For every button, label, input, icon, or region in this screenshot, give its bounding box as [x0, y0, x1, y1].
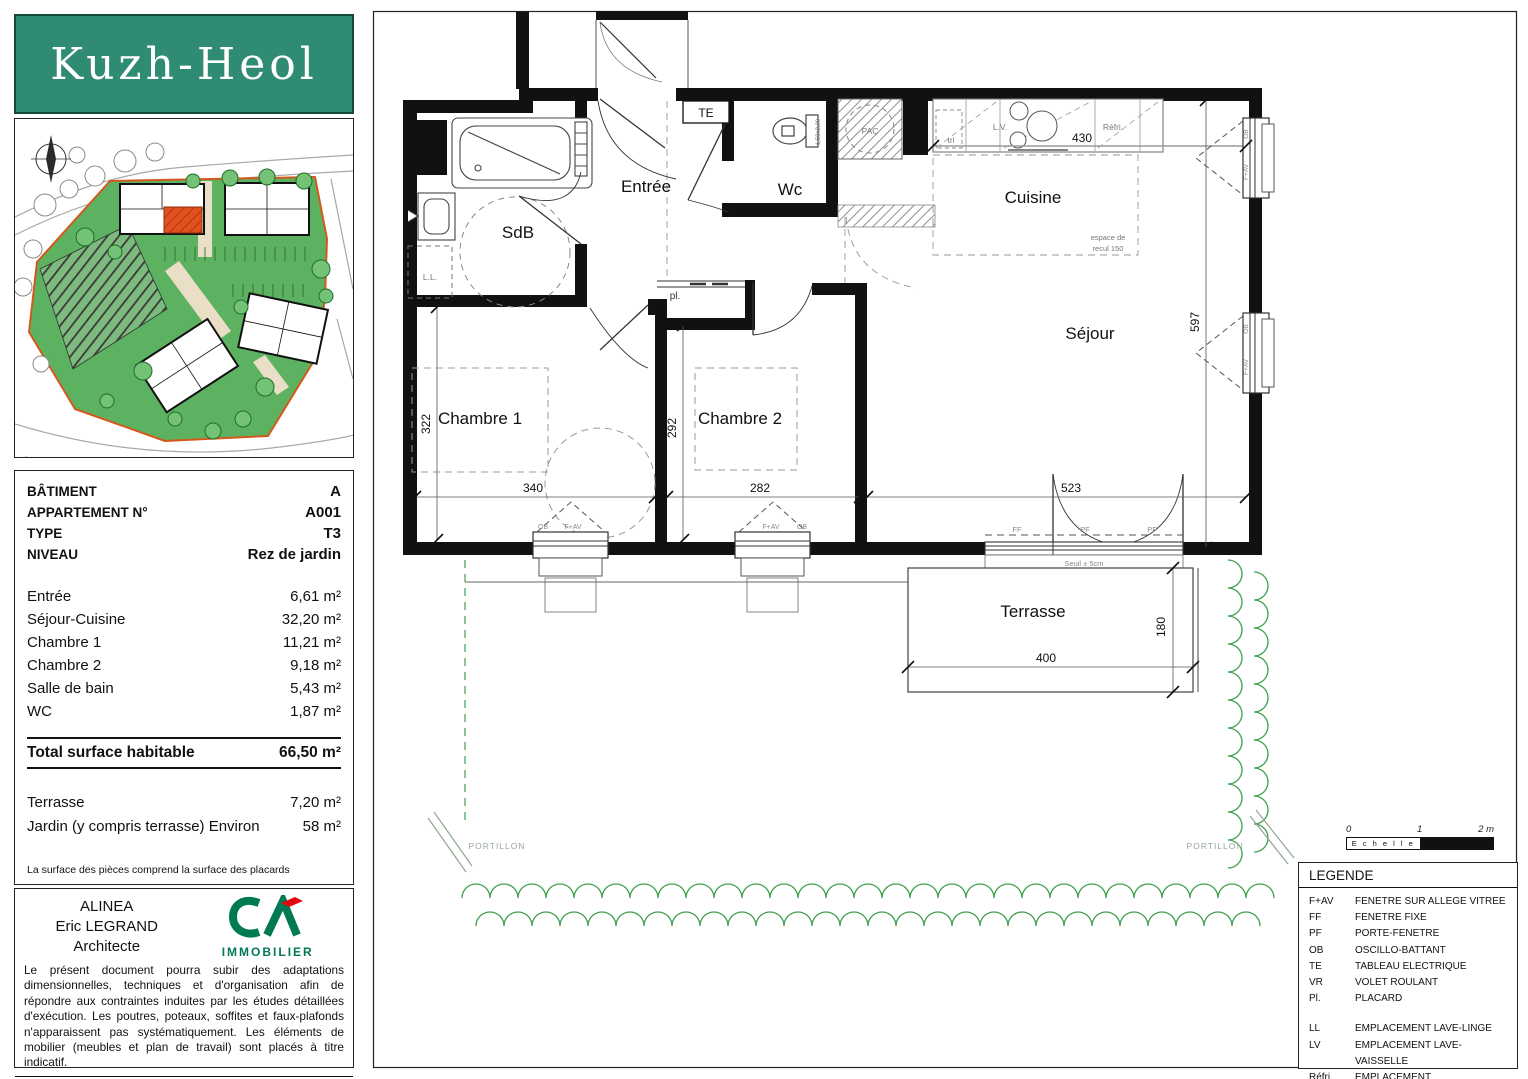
bathtub-icon [452, 118, 592, 188]
furniture-dashed [412, 368, 797, 538]
portillon-label-right: PORTILLON [1186, 841, 1243, 851]
te-label: TE [698, 106, 713, 120]
common-area [516, 11, 688, 89]
scale-2m: 2 m [1478, 824, 1494, 835]
dim-597: 597 [1188, 312, 1202, 332]
outdoor-areas: Terrasse7,20 m² Jardin (y compris terras… [27, 791, 341, 839]
room-label-sdb: SdB [502, 223, 534, 242]
dim-322: 322 [419, 414, 433, 434]
room-label-terrasse: Terrasse [1000, 602, 1065, 621]
ca-brand-name: IMMOBILIER [190, 945, 345, 959]
legend-row: Réfri.EMPLACEMENT REFRIGERATEUR [1309, 1070, 1511, 1079]
pl-label: pl. [670, 291, 681, 302]
ff-label: FF [1012, 525, 1022, 534]
pf-label: PF [1147, 525, 1157, 534]
surface-footnote: La surface des pièces comprend la surfac… [27, 864, 290, 876]
niveau-label: NIVEAU [27, 544, 78, 565]
fav-label: F+AV [762, 524, 780, 531]
ob-label: OB [797, 524, 807, 531]
seuil-label: Seuil ± 5cm [1064, 559, 1103, 568]
architect-panel: ALINEA Eric LEGRAND Architecte IMMOBILIE… [14, 888, 354, 1068]
legal-disclaimer: Le présent document pourra subir des ada… [15, 959, 353, 1071]
window-ch1: OB F+AV [533, 502, 608, 612]
dim-523: 523 [1061, 481, 1081, 495]
window-sejour-1: OB F+AV [1196, 118, 1274, 198]
ll-label: L.L. [423, 272, 437, 282]
legend-row: OBOSCILLO-BATTANT [1309, 943, 1511, 959]
highlighted-unit [164, 207, 202, 233]
room-label-chambre1: Chambre 1 [438, 409, 522, 428]
ob-label: OB [1243, 129, 1250, 138]
legend-row: Pl.PLACARD [1309, 991, 1511, 1007]
pac-label: PAC [862, 126, 879, 136]
room-label-wc: Wc [778, 180, 803, 199]
scale-0: 0 [1346, 824, 1351, 835]
placard-ch2 [657, 281, 745, 287]
kitchen-counter [933, 99, 1246, 255]
brand-logo: Kuzh-Heol [14, 14, 354, 114]
garden-gates [428, 810, 1294, 872]
small-annotations: PAC tri L.V. Réfri. L.L. pl. espace de r… [423, 118, 1244, 851]
dim-340: 340 [523, 481, 543, 495]
toilet-icon [773, 115, 818, 147]
apartment-info-panel: BÂTIMENTA APPARTEMENT N°A001 TYPET3 NIVE… [14, 470, 354, 885]
table-row: Chambre 29,18 m² [27, 654, 341, 677]
legend-row: FFFENETRE FIXE [1309, 910, 1511, 926]
architect-identity: ALINEA Eric LEGRAND Architecte [23, 895, 190, 959]
fav-label: F+AV [564, 524, 582, 531]
north-compass-icon [31, 135, 71, 183]
te-box: TE [683, 101, 729, 123]
legend-row: VRVOLET ROULANT [1309, 975, 1511, 991]
scale-bar: 0 1 2 m E c h e l l e [1346, 824, 1494, 864]
sejour-glazing: FF PF PF Seuil ± 5cm [985, 525, 1183, 571]
table-row: Séjour-Cuisine32,20 m² [27, 608, 341, 631]
espace-recul-line1: espace de [1091, 233, 1126, 242]
dim-292: 292 [665, 418, 679, 438]
batiment-value: A [330, 481, 341, 502]
lv-label: L.V. [993, 122, 1007, 132]
fav-label: F+AV [1243, 358, 1250, 375]
refri-label: Réfri. [1103, 122, 1123, 132]
appartement-value: A001 [305, 502, 341, 523]
drawing-sheet: OB F+AV F+AV OB FF [372, 10, 1518, 1069]
table-row: Terrasse7,20 m² [27, 791, 341, 815]
total-surface-row: Total surface habitable66,50 m² [27, 737, 341, 769]
legend-row: PFPORTE-FENETRE [1309, 926, 1511, 942]
plan-sheet-page: Kuzh-Heol [0, 0, 1528, 1079]
site-plan-drawing [15, 119, 353, 457]
room-label-chambre2: Chambre 2 [698, 409, 782, 428]
window-sejour-2: OB F+AV [1196, 313, 1274, 393]
ob-label: OB [1243, 324, 1250, 333]
ca-immobilier-brand: IMMOBILIER [190, 895, 345, 959]
portillon-label-left: PORTILLON [468, 841, 525, 851]
legend-row: LLEMPLACEMENT LAVE-LINGE [1309, 1021, 1511, 1037]
ob-label: OB [538, 524, 548, 531]
legend-row: TETABLEAU ELECTRIQUE [1309, 959, 1511, 975]
legend-panel: LEGENDE F+AVFENETRE SUR ALLEGE VITREE FF… [1298, 862, 1518, 1069]
appartement-label: APPARTEMENT N° [27, 502, 148, 523]
pf-label: PF [1080, 525, 1090, 534]
scale-1: 1 [1417, 824, 1422, 835]
type-value: T3 [323, 523, 341, 544]
dim-400: 400 [1036, 651, 1056, 665]
tri-label: tri [947, 135, 954, 145]
window-ch2: F+AV OB [735, 502, 810, 612]
dim-282: 282 [750, 481, 770, 495]
type-label: TYPE [27, 523, 62, 544]
turning-circle-sdb [460, 197, 570, 307]
legend-row: LVEMPLACEMENT LAVE-VAISSELLE [1309, 1038, 1511, 1070]
room-label-entree: Entrée [621, 177, 671, 196]
table-row: WC1,87 m² [27, 700, 341, 723]
dim-430: 430 [1072, 131, 1092, 145]
legend-row: F+AVFENETRE SUR ALLEGE VITREE [1309, 894, 1511, 910]
room-label-sejour: Séjour [1065, 324, 1114, 343]
table-row: Entrée6,61 m² [27, 585, 341, 608]
room-areas-table: Entrée6,61 m² Séjour-Cuisine32,20 m² Cha… [27, 585, 341, 723]
table-row: Jardin (y compris terrasse) Environ58 m² [27, 815, 341, 839]
brand-logo-text: Kuzh-Heol [50, 39, 318, 90]
espace-recul-line2: recul 150 [1093, 244, 1124, 253]
table-row: Salle de bain5,43 m² [27, 677, 341, 700]
ca-logo-icon [229, 895, 307, 939]
dim-180: 180 [1154, 617, 1168, 637]
legend-title: LEGENDE [1299, 863, 1517, 888]
wc-size-note: 1,50x2,20 [816, 118, 822, 145]
scale-black-segment [1421, 838, 1494, 849]
scale-echelle-label: E c h e l l e [1347, 838, 1421, 849]
room-label-cuisine: Cuisine [1005, 188, 1062, 207]
batiment-label: BÂTIMENT [27, 481, 97, 502]
table-row: Chambre 111,21 m² [27, 631, 341, 654]
site-plan-map [14, 118, 354, 458]
niveau-value: Rez de jardin [248, 544, 341, 565]
fav-label: F+AV [1243, 163, 1250, 180]
